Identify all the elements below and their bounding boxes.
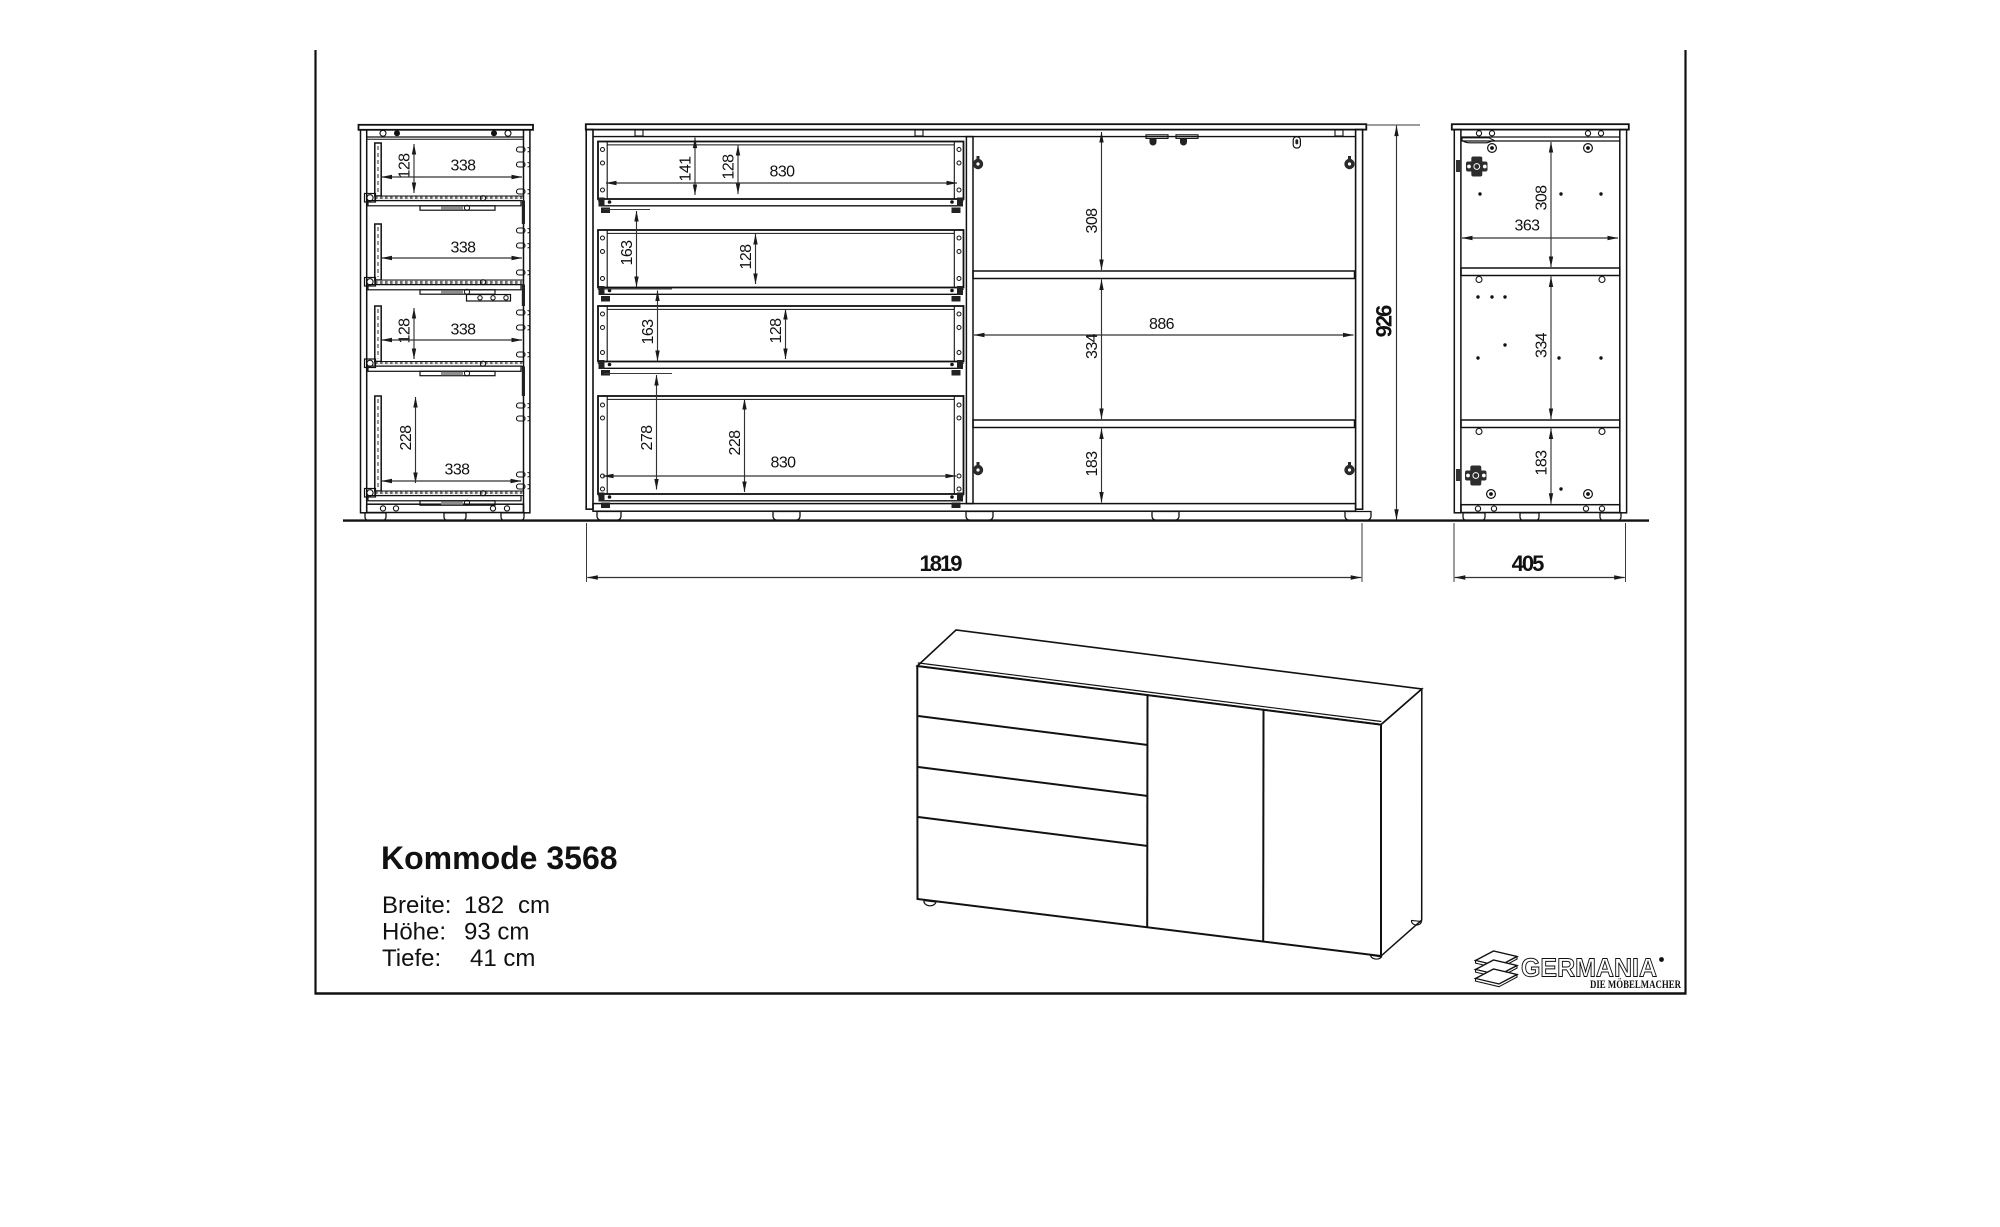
svg-text:Höhe:: Höhe:	[382, 919, 446, 946]
svg-text:Breite:: Breite:	[382, 892, 451, 919]
svg-text:886: 886	[1149, 316, 1175, 333]
svg-text:128: 128	[721, 154, 738, 180]
svg-text:228: 228	[398, 425, 415, 451]
svg-text:308: 308	[1534, 185, 1551, 211]
svg-text:163: 163	[640, 319, 657, 345]
svg-text:278: 278	[639, 425, 656, 451]
svg-text:GERMANIA: GERMANIA	[1521, 953, 1657, 983]
svg-text:338: 338	[451, 240, 477, 257]
svg-text:1819: 1819	[920, 551, 963, 576]
svg-text:830: 830	[770, 164, 796, 181]
svg-text:93 cm: 93 cm	[464, 919, 529, 946]
svg-text:141: 141	[678, 156, 695, 182]
svg-text:DIE MÖBELMACHER: DIE MÖBELMACHER	[1590, 977, 1682, 991]
svg-text:228: 228	[727, 430, 744, 456]
svg-text:183: 183	[1084, 451, 1101, 477]
svg-text:Kommode 3568: Kommode 3568	[381, 840, 618, 876]
svg-text:41 cm: 41 cm	[470, 945, 535, 972]
svg-text:926: 926	[1371, 305, 1396, 337]
svg-text:405: 405	[1512, 551, 1544, 576]
svg-text:363: 363	[1515, 218, 1541, 235]
svg-text:163: 163	[619, 240, 636, 266]
svg-text:308: 308	[1084, 208, 1101, 234]
svg-text:338: 338	[451, 158, 477, 175]
svg-text:Tiefe:: Tiefe:	[382, 945, 441, 972]
svg-text:830: 830	[771, 455, 797, 472]
svg-text:128: 128	[768, 318, 785, 344]
svg-text:128: 128	[397, 153, 414, 179]
svg-text:338: 338	[451, 322, 477, 339]
svg-text:128: 128	[738, 244, 755, 270]
svg-text:338: 338	[445, 462, 471, 479]
svg-text:182: 182	[464, 892, 504, 919]
svg-text:183: 183	[1534, 450, 1551, 476]
svg-text:cm: cm	[518, 892, 550, 919]
svg-text:334: 334	[1534, 332, 1551, 358]
svg-text:334: 334	[1084, 333, 1101, 359]
